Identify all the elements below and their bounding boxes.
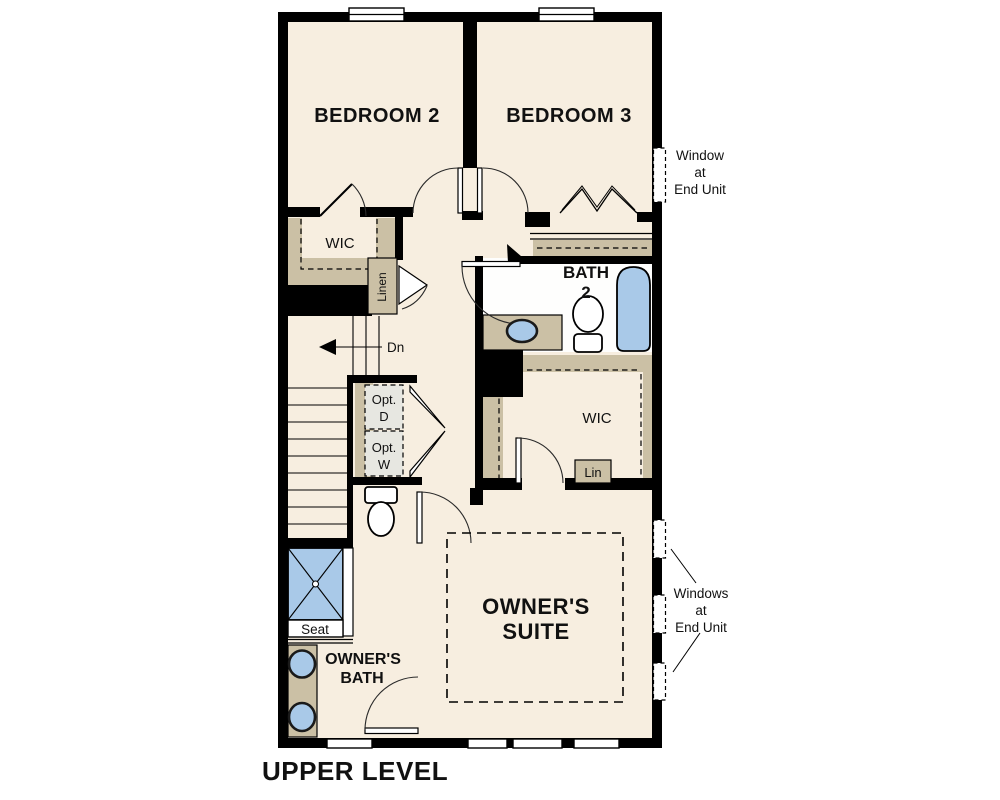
wall-right bbox=[652, 12, 662, 748]
stair-dn-label: Dn bbox=[387, 340, 404, 355]
window-end-unit-note: at bbox=[694, 165, 706, 180]
end-unit-window-icon bbox=[654, 148, 666, 202]
owners-bath-door-leaf bbox=[365, 728, 418, 734]
linen-label: Linen bbox=[375, 272, 389, 301]
window-icon bbox=[468, 739, 507, 748]
end-unit-window-icon bbox=[654, 595, 666, 633]
opt-washer-label: Opt. bbox=[372, 440, 397, 455]
windows-end-unit-note: Windows bbox=[674, 586, 729, 601]
shower-drain-icon bbox=[313, 581, 319, 587]
wall-stair-block bbox=[278, 285, 372, 316]
opt-washer-label: W bbox=[378, 457, 391, 472]
wall-bedroom2-south bbox=[288, 207, 320, 217]
annotation-leader-line bbox=[673, 633, 700, 672]
annotation-leader-line bbox=[671, 549, 696, 583]
wall-bedroom-divider bbox=[463, 22, 477, 168]
wic2-shelf-left bbox=[288, 218, 302, 260]
sink-icon bbox=[289, 703, 315, 731]
window-end-unit-note: End Unit bbox=[674, 182, 726, 197]
floorplan-page: BEDROOM 2 BEDROOM 3 WIC Linen BATH 2 Dn … bbox=[0, 0, 1000, 800]
shower-glass-panel bbox=[343, 548, 353, 636]
bath2-label: 2 bbox=[581, 283, 590, 302]
end-unit-window-icon bbox=[654, 520, 666, 558]
wic-owner-shelf-right bbox=[643, 372, 652, 480]
wic-owner-shelf-left bbox=[483, 395, 503, 480]
toilet-icon bbox=[365, 487, 397, 503]
lin-label: Lin bbox=[584, 465, 601, 480]
wall-closet3-west bbox=[525, 212, 550, 227]
wall-laundry-south bbox=[347, 477, 422, 485]
wall-left bbox=[278, 12, 288, 748]
wall-laundry-north bbox=[347, 375, 417, 383]
end-unit-window-icon bbox=[654, 663, 666, 700]
bath2-door-leaf bbox=[462, 262, 520, 267]
wall-bedroom2-south bbox=[360, 207, 413, 217]
windows-end-unit-note: End Unit bbox=[675, 620, 727, 635]
opt-dryer-label: D bbox=[379, 409, 388, 424]
windows-end-unit-note: at bbox=[695, 603, 707, 618]
wic2-label: WIC bbox=[325, 235, 354, 252]
opt-dryer-label: Opt. bbox=[372, 392, 397, 407]
sink-icon bbox=[289, 651, 315, 678]
bath2-label: BATH bbox=[563, 263, 609, 282]
window-icon bbox=[574, 739, 619, 748]
bathtub-icon bbox=[617, 267, 650, 351]
bedroom3-label: BEDROOM 3 bbox=[506, 105, 632, 127]
wall-corner-block bbox=[481, 350, 523, 397]
window-icon bbox=[327, 739, 372, 748]
floorplan-drawing: BEDROOM 2 BEDROOM 3 WIC Linen BATH 2 Dn … bbox=[0, 0, 1000, 800]
suite-door-leaf bbox=[417, 492, 422, 543]
owners-bath-label: OWNER'S bbox=[325, 651, 401, 668]
bedroom2-door-leaf bbox=[458, 168, 463, 213]
seat-label: Seat bbox=[301, 622, 329, 637]
annotations: Window at End Unit Windows at End Unit bbox=[671, 148, 729, 672]
bedroom2-label: BEDROOM 2 bbox=[314, 105, 440, 127]
wall-stair-bottom bbox=[278, 538, 353, 548]
wall-suite-nw-stub bbox=[470, 488, 483, 505]
wall-hall-east bbox=[475, 350, 483, 492]
wall-bedroom3-south bbox=[637, 212, 652, 222]
page-title: UPPER LEVEL bbox=[262, 756, 448, 786]
wic-owner-label: WIC bbox=[582, 410, 611, 427]
window-end-unit-note: Window bbox=[676, 148, 724, 163]
wic2-shelf-bottom bbox=[288, 258, 368, 285]
owners-suite-label: SUITE bbox=[502, 619, 569, 644]
window-icon bbox=[513, 739, 562, 748]
bedroom3-door-leaf bbox=[478, 168, 483, 213]
sink-icon bbox=[507, 320, 537, 342]
owners-suite-label: OWNER'S bbox=[482, 594, 590, 619]
wall-top bbox=[278, 12, 662, 22]
wic2-shelf-right bbox=[376, 218, 395, 260]
wic-owner-door-leaf bbox=[516, 438, 521, 483]
toilet-icon bbox=[574, 334, 602, 352]
owners-bath-label: BATH bbox=[340, 670, 383, 687]
wall-stair-east bbox=[347, 383, 353, 548]
wall-wic2-east bbox=[395, 207, 403, 260]
toilet-icon bbox=[368, 502, 394, 536]
